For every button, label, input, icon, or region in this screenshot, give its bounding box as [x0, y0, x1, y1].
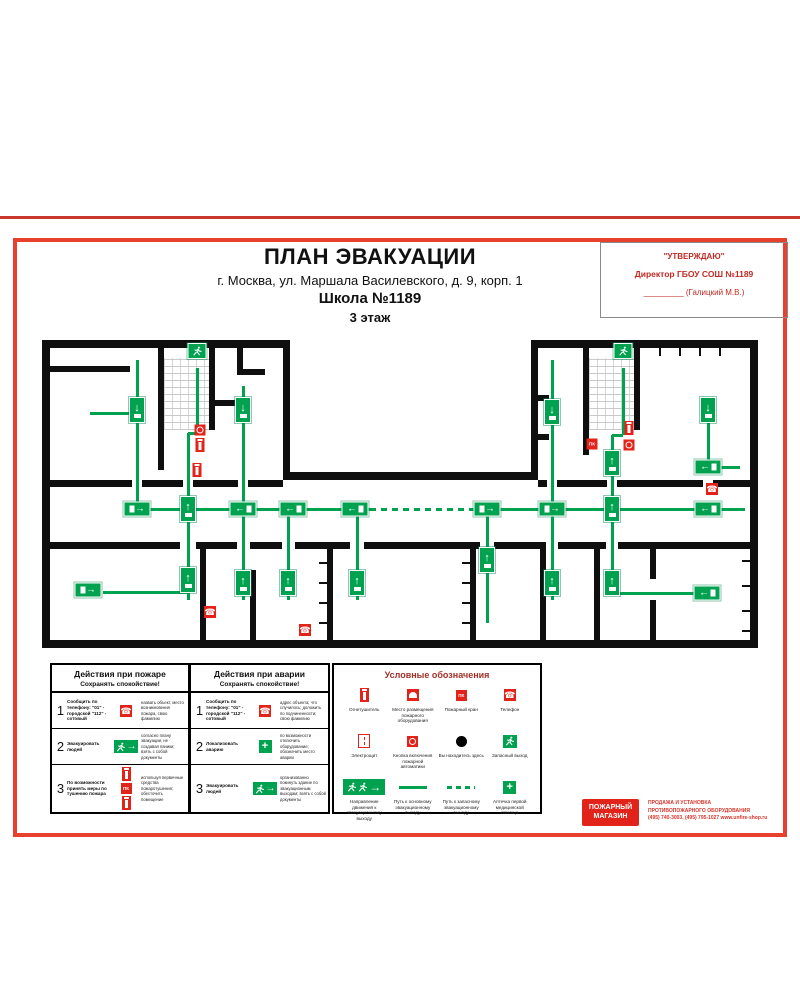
wall [196, 542, 237, 549]
evacuation-route-line [612, 434, 623, 437]
action-text: Эвакуировать людей [206, 783, 250, 794]
evacuation-route-line [551, 360, 554, 507]
exit-door-glyph [711, 506, 716, 513]
legend-item-label: Запасный выход [492, 753, 527, 759]
secondary-route-line-sample [447, 786, 475, 789]
action-row: 3Эвакуировать людей→организованно покину… [191, 765, 328, 812]
fire-extinguisher-icon [625, 421, 634, 435]
exit-direction-sign: ← [342, 502, 369, 517]
action-row: 1Сообщить по телефону: "01" - городской … [191, 693, 328, 729]
approval-word: "УТВЕРЖДАЮ" [601, 252, 787, 261]
wall [248, 480, 283, 487]
legend-item-label: Огнетушитель [349, 707, 379, 713]
phone-icon: ☎ [204, 606, 216, 618]
wall [250, 542, 282, 549]
action-number: 3 [54, 781, 67, 796]
action-note: по возможности отключить оборудование; о… [280, 733, 326, 760]
arrow-down-icon: ↓ [240, 403, 246, 413]
legend-symbols: Условные обозначения ОгнетушительМесто р… [332, 663, 542, 814]
fire-equipment-place-icon [407, 689, 419, 701]
action-icon: → [111, 740, 141, 753]
window-tick [742, 560, 750, 562]
plan-icon [196, 438, 205, 452]
action-note: адрес объекта; что случилось; доложить п… [280, 700, 326, 722]
arrow-up-icon: ↑ [609, 576, 615, 586]
exit-door-glyph [185, 513, 192, 517]
legend-item: Путь к основному эвакуационному выходу [389, 778, 438, 822]
arrow-left-icon: ← [285, 504, 295, 514]
exit-direction-sign: ← [280, 502, 307, 517]
sales-line1: ПРОДАЖА И УСТАНОВКА [648, 800, 786, 808]
exit-door-glyph [710, 590, 715, 597]
wall [237, 369, 265, 375]
legend-fire-header: Действия при пожаре Сохранять спокойстви… [52, 665, 188, 693]
main-route-line-sample [399, 786, 427, 789]
page-title: ПЛАН ЭВАКУАЦИИ [110, 243, 630, 271]
legend-item-label: Вы находитесь здесь [439, 753, 484, 759]
arrow-right-icon: → [86, 585, 96, 595]
window-tick [659, 348, 661, 356]
arrow-left-icon: ← [700, 504, 710, 514]
arrow-up-icon: ↑ [185, 573, 191, 583]
fire-crane-icon: ПК [587, 439, 598, 450]
legend-item: Путь к запасному эвакуационному выходу [437, 778, 486, 822]
window-tick [462, 622, 470, 624]
legend-item-label: Электрощит [351, 753, 377, 759]
legend-item-icon: ПК [456, 686, 467, 704]
fire-extinguisher-icon [196, 438, 205, 452]
legend-item-icon: → [343, 778, 385, 796]
address-line: г. Москва, ул. Маршала Василевского, д. … [110, 273, 630, 289]
approval-signature: _________ (Галицкий М.В.) [601, 288, 787, 297]
window-tick [699, 348, 701, 356]
evacuation-arrow-sign: ↑ [604, 496, 620, 522]
fire-equipment-icons: ПК [121, 767, 132, 810]
staircase [164, 358, 209, 430]
wall [650, 549, 656, 579]
action-number: 1 [54, 703, 67, 718]
legend-item-icon [399, 778, 427, 796]
wall [634, 348, 640, 430]
exit-direction-sign: → [539, 502, 566, 517]
fire-extinguisher-icon [122, 767, 131, 781]
evacuation-arrow-sign: ↓ [700, 397, 716, 423]
exit-door-glyph [609, 513, 616, 517]
arrow-left-icon: ← [700, 462, 710, 472]
window-tick [719, 348, 721, 356]
emergency-exit-icon [503, 735, 517, 748]
action-icon: → [250, 782, 280, 795]
exit-direction-sign: ← [695, 460, 722, 475]
window-tick [319, 582, 327, 584]
arrow-left-icon: ← [347, 504, 357, 514]
wall [364, 542, 480, 549]
exit-direction-sign: ← [694, 586, 721, 601]
window-tick [319, 622, 327, 624]
legend-item: Место размещения пожарного оборудования [389, 686, 438, 728]
legend-accident-header: Действия при аварии Сохранять спокойстви… [191, 665, 328, 693]
wall [283, 340, 290, 480]
action-number: 2 [193, 739, 206, 754]
legend-fire-title: Действия при пожаре [54, 669, 186, 679]
arrow-down-icon: ↓ [134, 403, 140, 413]
plan-icon: ☎ [204, 606, 216, 618]
legend-item-label: Телефон [500, 707, 519, 713]
fire-crane-icon: ПК [121, 783, 132, 794]
exit-door-glyph [705, 414, 712, 418]
exit-door-glyph [134, 414, 141, 418]
plan-icon [193, 463, 202, 477]
exit-door-glyph [484, 564, 491, 568]
evacuation-plan-poster: ПЛАН ЭВАКУАЦИИ г. Москва, ул. Маршала Ва… [0, 0, 800, 1000]
phone-icon: ☎ [259, 705, 271, 717]
legend-item: +Аптечка первой медицинской помощи [486, 778, 535, 822]
legend-item-icon: + [503, 778, 516, 796]
exit-sign-icon: → [253, 782, 277, 795]
phone-icon: ☎ [120, 705, 132, 717]
fire-alarm-button-icon [195, 425, 206, 436]
evacuation-arrow-sign: ↑ [349, 570, 365, 596]
phone-icon: ☎ [706, 483, 718, 495]
legend-item: Кнопка включения пожарной автоматики [389, 732, 438, 774]
action-text: Сообщить по телефону: "01" - городской "… [67, 699, 111, 722]
you-are-here-dot [456, 736, 467, 747]
arrow-right-icon: → [550, 504, 560, 514]
legend-fire-rows: 1Сообщить по телефону: "01" - городской … [52, 693, 188, 812]
exit-door-glyph [549, 416, 556, 420]
legend-item-label: Аптечка первой медицинской помощи [487, 799, 533, 816]
action-note: организованно покинуть здание по эвакуац… [280, 775, 326, 802]
arrow-right-icon: → [135, 504, 145, 514]
approval-box: "УТВЕРЖДАЮ" Директор ГБОУ СОШ №1189 ____… [600, 242, 788, 318]
window-tick [742, 585, 750, 587]
arrow-up-icon: ↑ [185, 502, 191, 512]
electrical-panel-icon [358, 734, 370, 748]
window-tick [319, 602, 327, 604]
poster-header: ПЛАН ЭВАКУАЦИИ г. Москва, ул. Маршала Ва… [110, 243, 630, 326]
window-tick [319, 562, 327, 564]
plan-icon [625, 421, 634, 435]
evacuation-arrow-sign: ↓ [235, 397, 251, 423]
exit-door-glyph [609, 467, 616, 471]
legend-item-label: Кнопка включения пожарной автоматики [390, 753, 436, 770]
fire-alarm-button-icon [624, 440, 635, 451]
evacuation-arrow-sign: ↑ [180, 496, 196, 522]
shop-logo-line2: МАГАЗИН [594, 813, 628, 821]
exit-door-glyph [549, 587, 556, 591]
emergency-exit-sign [614, 343, 633, 359]
exit-door-glyph [240, 587, 247, 591]
exit-door-glyph [609, 587, 616, 591]
action-icon: ПК [111, 767, 141, 810]
exit-door-glyph [80, 587, 85, 594]
action-row: 1Сообщить по телефону: "01" - городской … [52, 693, 188, 729]
legend-fire-subtitle: Сохранять спокойствие! [54, 681, 186, 688]
window-tick [742, 630, 750, 632]
wall [617, 480, 703, 487]
legend-item-label: Место размещения пожарного оборудования [390, 707, 436, 724]
wall [538, 480, 547, 487]
exit-door-glyph [544, 506, 549, 513]
wall [193, 480, 238, 487]
plan-icon: ПК [587, 439, 598, 450]
exit-direction-sign: → [474, 502, 501, 517]
exit-door-glyph [358, 506, 363, 513]
route-arrowhead: ↑ [194, 364, 201, 379]
action-row: 2Эвакуировать людей→согласно плану эваку… [52, 729, 188, 765]
exit-door-glyph [296, 506, 301, 513]
wall [557, 480, 607, 487]
fire-crane-icon: ПК [456, 690, 467, 701]
window-tick [462, 582, 470, 584]
evacuation-route-line [103, 591, 188, 594]
action-number: 1 [193, 703, 206, 718]
legend-item-icon [360, 686, 369, 704]
exit-door-glyph [185, 584, 192, 588]
window-tick [462, 602, 470, 604]
fire-extinguisher-icon [122, 796, 131, 810]
emergency-exit-sign [188, 343, 207, 359]
evacuation-arrow-sign: ↓ [129, 397, 145, 423]
arrow-down-icon: ↓ [705, 403, 711, 413]
arrow-up-icon: ↑ [484, 553, 490, 563]
wall [713, 480, 750, 487]
wall [618, 542, 750, 549]
wall [558, 542, 606, 549]
wall [200, 549, 206, 640]
legend-symbols-grid: ОгнетушительМесто размещения пожарного о… [334, 680, 540, 824]
exit-door-glyph [354, 587, 361, 591]
first-aid-icon: + [259, 740, 272, 753]
evacuation-arrow-sign: ↑ [479, 547, 495, 573]
wall [650, 600, 656, 640]
legend-item-label: Путь к запасному эвакуационному выходу [438, 799, 484, 816]
action-text: Сообщить по телефону: "01" - городской "… [206, 699, 250, 722]
arrow-up-icon: ↑ [609, 502, 615, 512]
evacuation-arrow-sign: ↑ [280, 570, 296, 596]
wall [494, 542, 546, 549]
legend-item-icon [358, 732, 370, 750]
legend-item: →Направление движения к эвакуационному в… [340, 778, 389, 822]
wall [49, 366, 130, 372]
wall [158, 348, 164, 470]
legend-accident-actions: Действия при аварии Сохранять спокойстви… [189, 663, 330, 814]
window-tick [742, 610, 750, 612]
phone-icon: ☎ [299, 624, 311, 636]
legend-accident-subtitle: Сохранять спокойствие! [193, 681, 326, 688]
exit-door-glyph [240, 414, 247, 418]
arrow-up-icon: ↑ [549, 576, 555, 586]
fire-extinguisher-icon [360, 688, 369, 702]
legend-item-icon [407, 732, 418, 750]
sales-contact-text: ПРОДАЖА И УСТАНОВКА ПРОТИВОПОЖАРНОГО ОБО… [648, 800, 786, 823]
wall [470, 549, 476, 640]
evacuation-arrow-sign: ↑ [604, 570, 620, 596]
approval-director: Директор ГБОУ СОШ №1189 [601, 269, 787, 279]
arrow-up-icon: ↑ [609, 456, 615, 466]
exit-door-glyph [711, 464, 716, 471]
arrow-left-icon: ← [235, 504, 245, 514]
action-icon: ☎ [111, 705, 141, 717]
sales-line2: ПРОТИВОПОЖАРНОГО ОБОРУДОВАНИЯ [648, 808, 786, 816]
arrow-up-icon: ↑ [354, 576, 360, 586]
window-tick [462, 562, 470, 564]
fire-shop-logo: ПОЖАРНЫЙ МАГАЗИН [582, 799, 639, 826]
exit-direction-sign: ← [695, 502, 722, 517]
wall [49, 480, 132, 487]
shop-logo-line1: ПОЖАРНЫЙ [589, 804, 632, 812]
action-row: 3По возможности принять меры по тушению … [52, 765, 188, 812]
evacuation-route-line [612, 592, 700, 595]
action-text: Локализовать аварию [206, 741, 250, 752]
evacuation-arrow-sign: ↑ [235, 570, 251, 596]
legend-item-label: Пожарный кран [445, 707, 478, 713]
legend-item-icon [447, 778, 475, 796]
wall [283, 472, 538, 480]
wall [49, 542, 180, 549]
action-note: используя первичные средства пожаротушен… [141, 775, 186, 802]
legend-item-icon [456, 732, 467, 750]
legend-accident-title: Действия при аварии [193, 669, 326, 679]
fire-alarm-button-icon [407, 736, 418, 747]
wall [531, 340, 758, 348]
wall [295, 542, 350, 549]
action-icon: + [250, 740, 280, 753]
legend-item-icon: ☎ [504, 686, 516, 704]
exit-door-glyph [285, 587, 292, 591]
wall [594, 549, 600, 640]
action-number: 3 [193, 781, 206, 796]
legend-item: ☎Телефон [486, 686, 535, 728]
evacuation-route-line [136, 360, 139, 507]
poster-top-edge [0, 216, 800, 219]
evacuation-arrow-sign: ↑ [544, 570, 560, 596]
wall [42, 340, 50, 648]
legend-item: Запасный выход [486, 732, 535, 774]
legend-item: Вы находитесь здесь [437, 732, 486, 774]
plan-icon [195, 425, 206, 436]
wall [142, 480, 183, 487]
exit-sign-icon: → [114, 740, 138, 753]
building-name: Школа №1189 [110, 290, 630, 309]
legend-item: ПКПожарный кран [437, 686, 486, 728]
legend-item: Огнетушитель [340, 686, 389, 728]
exit-direction-sign: → [124, 502, 151, 517]
action-text: Эвакуировать людей [67, 741, 111, 752]
sales-line3: (495) 740-3003, (495) 795-1027 www.unfir… [648, 815, 786, 823]
legend-item-icon [503, 732, 517, 750]
wall [327, 549, 333, 640]
arrow-up-icon: ↑ [240, 576, 246, 586]
phone-icon: ☎ [504, 689, 516, 701]
wall [42, 640, 758, 648]
exit-direction-sign: → [75, 583, 102, 598]
evacuation-route-dashed [370, 508, 490, 511]
exit-door-glyph [246, 506, 251, 513]
legend-item: Электрощит [340, 732, 389, 774]
legend-item-icon [407, 686, 419, 704]
arrow-right-icon: → [485, 504, 495, 514]
action-note: назвать объект, место возникновения пожа… [141, 700, 186, 722]
arrow-left-icon: ← [699, 588, 709, 598]
action-text: По возможности принять меры по тушению п… [67, 780, 111, 797]
action-row: 2Локализовать аварию+по возможности откл… [191, 729, 328, 765]
wall [531, 340, 538, 480]
action-note: согласно плану эвакуации, не создавая па… [141, 733, 186, 760]
fire-extinguisher-icon [193, 463, 202, 477]
arrow-down-icon: ↓ [549, 405, 555, 415]
first-aid-icon: + [503, 781, 516, 794]
plan-icon: ☎ [299, 624, 311, 636]
plan-icon: ☎ [706, 483, 718, 495]
exit-direction-sign: ← [230, 502, 257, 517]
evacuation-arrow-sign: ↑ [604, 450, 620, 476]
evacuation-direction-sign: → [343, 779, 385, 795]
plan-icon [624, 440, 635, 451]
exit-door-glyph [129, 506, 134, 513]
staircase [589, 358, 634, 430]
route-arrowhead: ↑ [620, 364, 627, 379]
legend-item-label: Путь к основному эвакуационному выходу [390, 799, 436, 816]
legend-accident-rows: 1Сообщить по телефону: "01" - городской … [191, 693, 328, 812]
legend-symbols-title: Условные обозначения [334, 670, 540, 680]
evacuation-arrow-sign: ↑ [180, 567, 196, 593]
floor-label: 3 этаж [110, 310, 630, 326]
legend-fire-actions: Действия при пожаре Сохранять спокойстви… [50, 663, 190, 814]
wall [750, 340, 758, 648]
wall [42, 340, 290, 348]
exit-door-glyph [479, 506, 484, 513]
action-icon: ☎ [250, 705, 280, 717]
wall [538, 434, 549, 440]
legend-item-label: Направление движения к эвакуационному вы… [341, 799, 387, 822]
wall [209, 348, 215, 430]
action-number: 2 [54, 739, 67, 754]
evacuation-arrow-sign: ↓ [544, 399, 560, 425]
window-tick [679, 348, 681, 356]
arrow-up-icon: ↑ [285, 576, 291, 586]
